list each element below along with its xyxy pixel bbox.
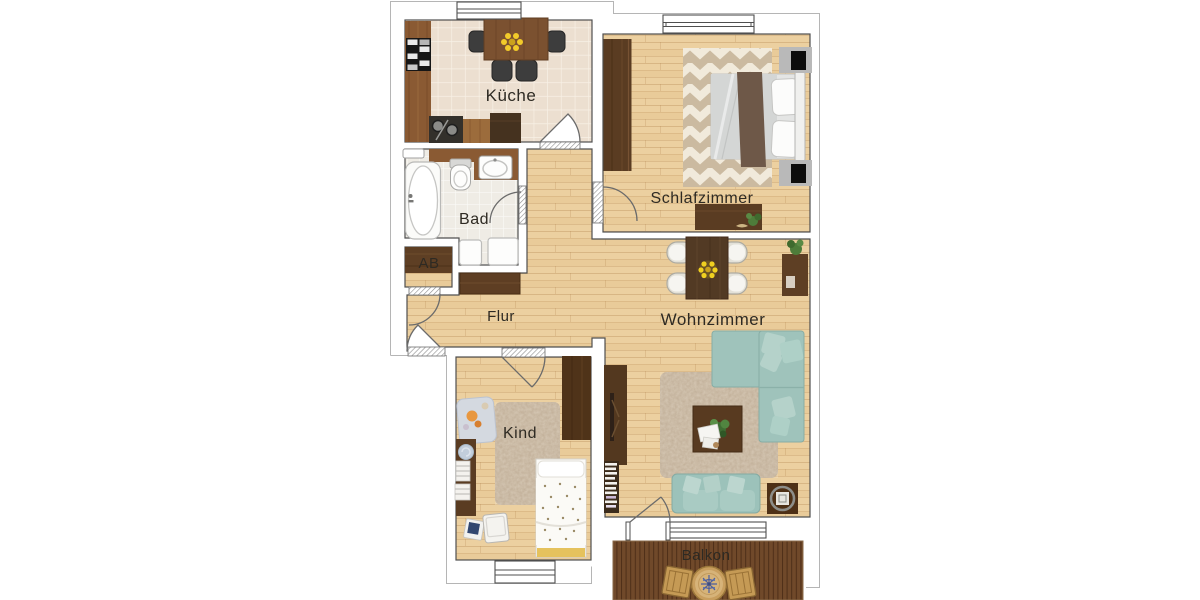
svg-text:Küche: Küche	[486, 86, 537, 105]
svg-text:Schlafzimmer: Schlafzimmer	[651, 190, 754, 207]
svg-text:Kind: Kind	[503, 425, 537, 442]
svg-text:Flur: Flur	[487, 308, 515, 325]
svg-text:Balkon: Balkon	[682, 547, 731, 564]
svg-text:Wohnzimmer: Wohnzimmer	[661, 310, 766, 329]
svg-text:Bad: Bad	[459, 211, 489, 228]
svg-text:AB: AB	[418, 255, 439, 272]
